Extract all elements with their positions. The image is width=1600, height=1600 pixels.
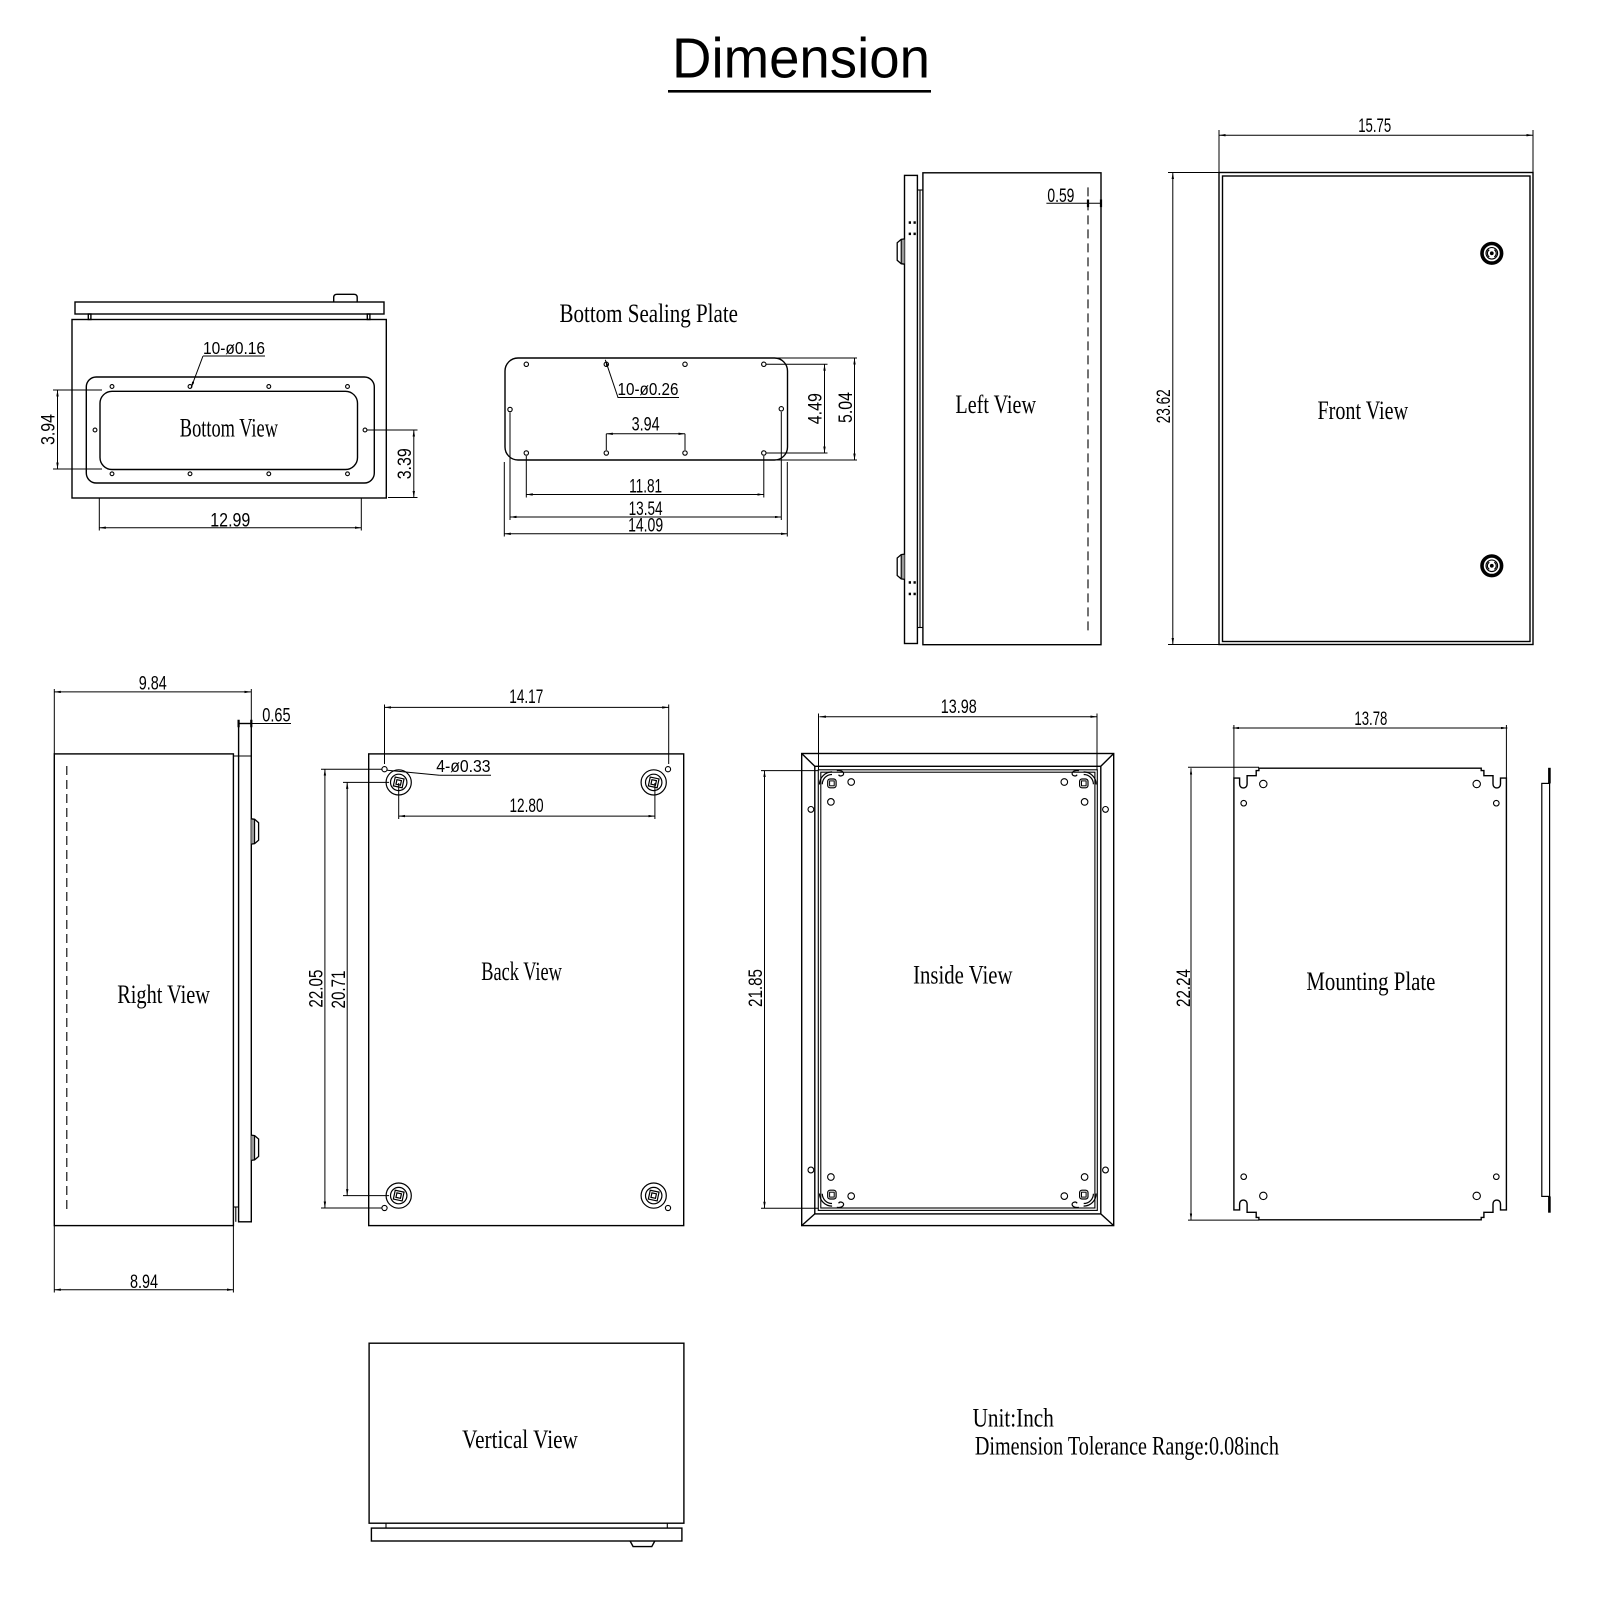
svg-text:23.62: 23.62: [1154, 389, 1175, 423]
svg-text:Inside View: Inside View: [913, 961, 1013, 990]
svg-text:4-ø0.33: 4-ø0.33: [436, 756, 490, 776]
svg-text:3.39: 3.39: [395, 448, 416, 479]
svg-text:Back View: Back View: [481, 957, 562, 986]
svg-text:13.78: 13.78: [1354, 709, 1387, 730]
svg-text:Bottom Sealing Plate: Bottom Sealing Plate: [560, 299, 739, 328]
svg-text:20.71: 20.71: [329, 971, 350, 1009]
svg-text:14.09: 14.09: [628, 516, 663, 537]
svg-text:Mounting Plate: Mounting Plate: [1306, 967, 1435, 996]
svg-text:13.98: 13.98: [941, 697, 977, 718]
svg-text:22.24: 22.24: [1174, 969, 1195, 1007]
svg-text:Vertical View: Vertical View: [462, 1425, 578, 1454]
svg-text:21.85: 21.85: [746, 969, 767, 1007]
svg-text:Unit:Inch: Unit:Inch: [973, 1403, 1054, 1432]
svg-text:Right View: Right View: [117, 980, 210, 1009]
svg-text:0.59: 0.59: [1047, 186, 1074, 207]
svg-text:11.81: 11.81: [629, 477, 662, 498]
svg-text:Dimension Tolerance Range:0.08: Dimension Tolerance Range:0.08inch: [975, 1432, 1279, 1461]
svg-text:22.05: 22.05: [307, 970, 328, 1008]
svg-text:Left View: Left View: [955, 390, 1036, 419]
svg-text:14.17: 14.17: [509, 687, 543, 708]
svg-text:Bottom View: Bottom View: [180, 414, 278, 443]
svg-text:Front View: Front View: [1318, 396, 1409, 425]
svg-text:3.94: 3.94: [39, 414, 60, 445]
svg-text:Dimension: Dimension: [672, 27, 930, 91]
svg-text:9.84: 9.84: [139, 674, 167, 695]
svg-text:5.04: 5.04: [836, 392, 857, 423]
svg-text:4.49: 4.49: [805, 393, 826, 424]
svg-text:15.75: 15.75: [1358, 116, 1391, 137]
svg-text:0.65: 0.65: [262, 705, 290, 726]
svg-text:8.94: 8.94: [130, 1272, 158, 1293]
svg-text:10-ø0.16: 10-ø0.16: [203, 338, 265, 358]
svg-text:3.94: 3.94: [632, 415, 660, 436]
svg-text:12.99: 12.99: [210, 511, 250, 532]
svg-text:12.80: 12.80: [510, 796, 544, 817]
svg-text:10-ø0.26: 10-ø0.26: [618, 379, 679, 399]
